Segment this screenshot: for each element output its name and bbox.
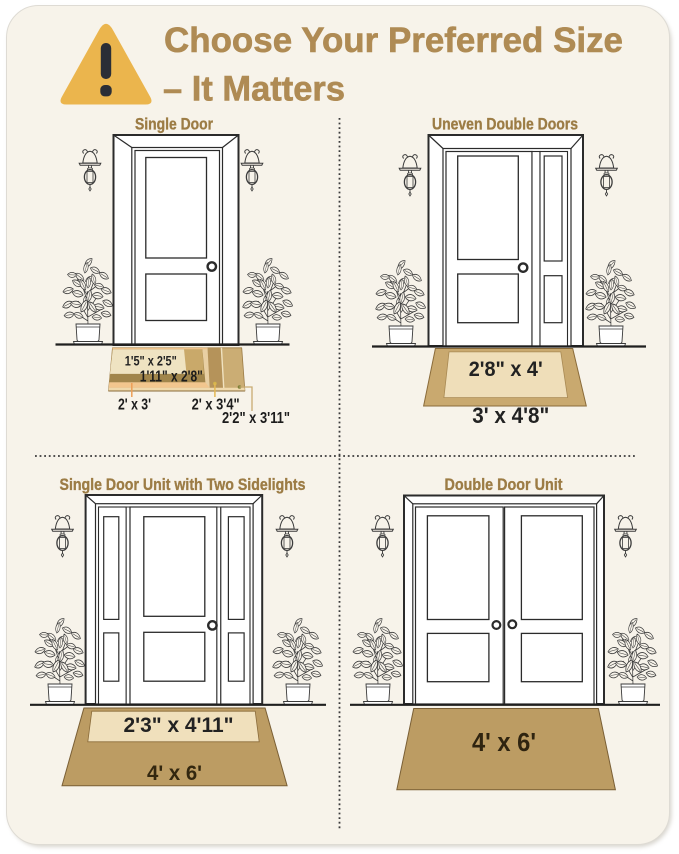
- svg-text:3' x 4'8": 3' x 4'8": [472, 403, 549, 428]
- svg-text:Single Door Unit with Two Side: Single Door Unit with Two Sidelights: [60, 475, 306, 494]
- svg-text:4' x 6': 4' x 6': [147, 761, 202, 785]
- svg-text:– It Matters: – It Matters: [163, 69, 345, 108]
- svg-text:Double Door Unit: Double Door Unit: [445, 475, 563, 494]
- svg-text:2' x 3': 2' x 3': [118, 397, 151, 414]
- svg-text:Choose Your Preferred Size: Choose Your Preferred Size: [164, 21, 623, 60]
- svg-text:2'8" x 4': 2'8" x 4': [469, 357, 543, 381]
- svg-text:4' x 6': 4' x 6': [472, 729, 536, 757]
- svg-text:2'2" x 3'11": 2'2" x 3'11": [222, 410, 290, 427]
- svg-text:Single Door: Single Door: [135, 115, 213, 134]
- svg-text:2'3" x 4'11": 2'3" x 4'11": [124, 713, 234, 737]
- svg-text:1'5" x 2'5": 1'5" x 2'5": [125, 354, 177, 369]
- svg-text:Uneven Double Doors: Uneven Double Doors: [432, 115, 578, 134]
- svg-text:1'11" x 2'8": 1'11" x 2'8": [140, 369, 203, 386]
